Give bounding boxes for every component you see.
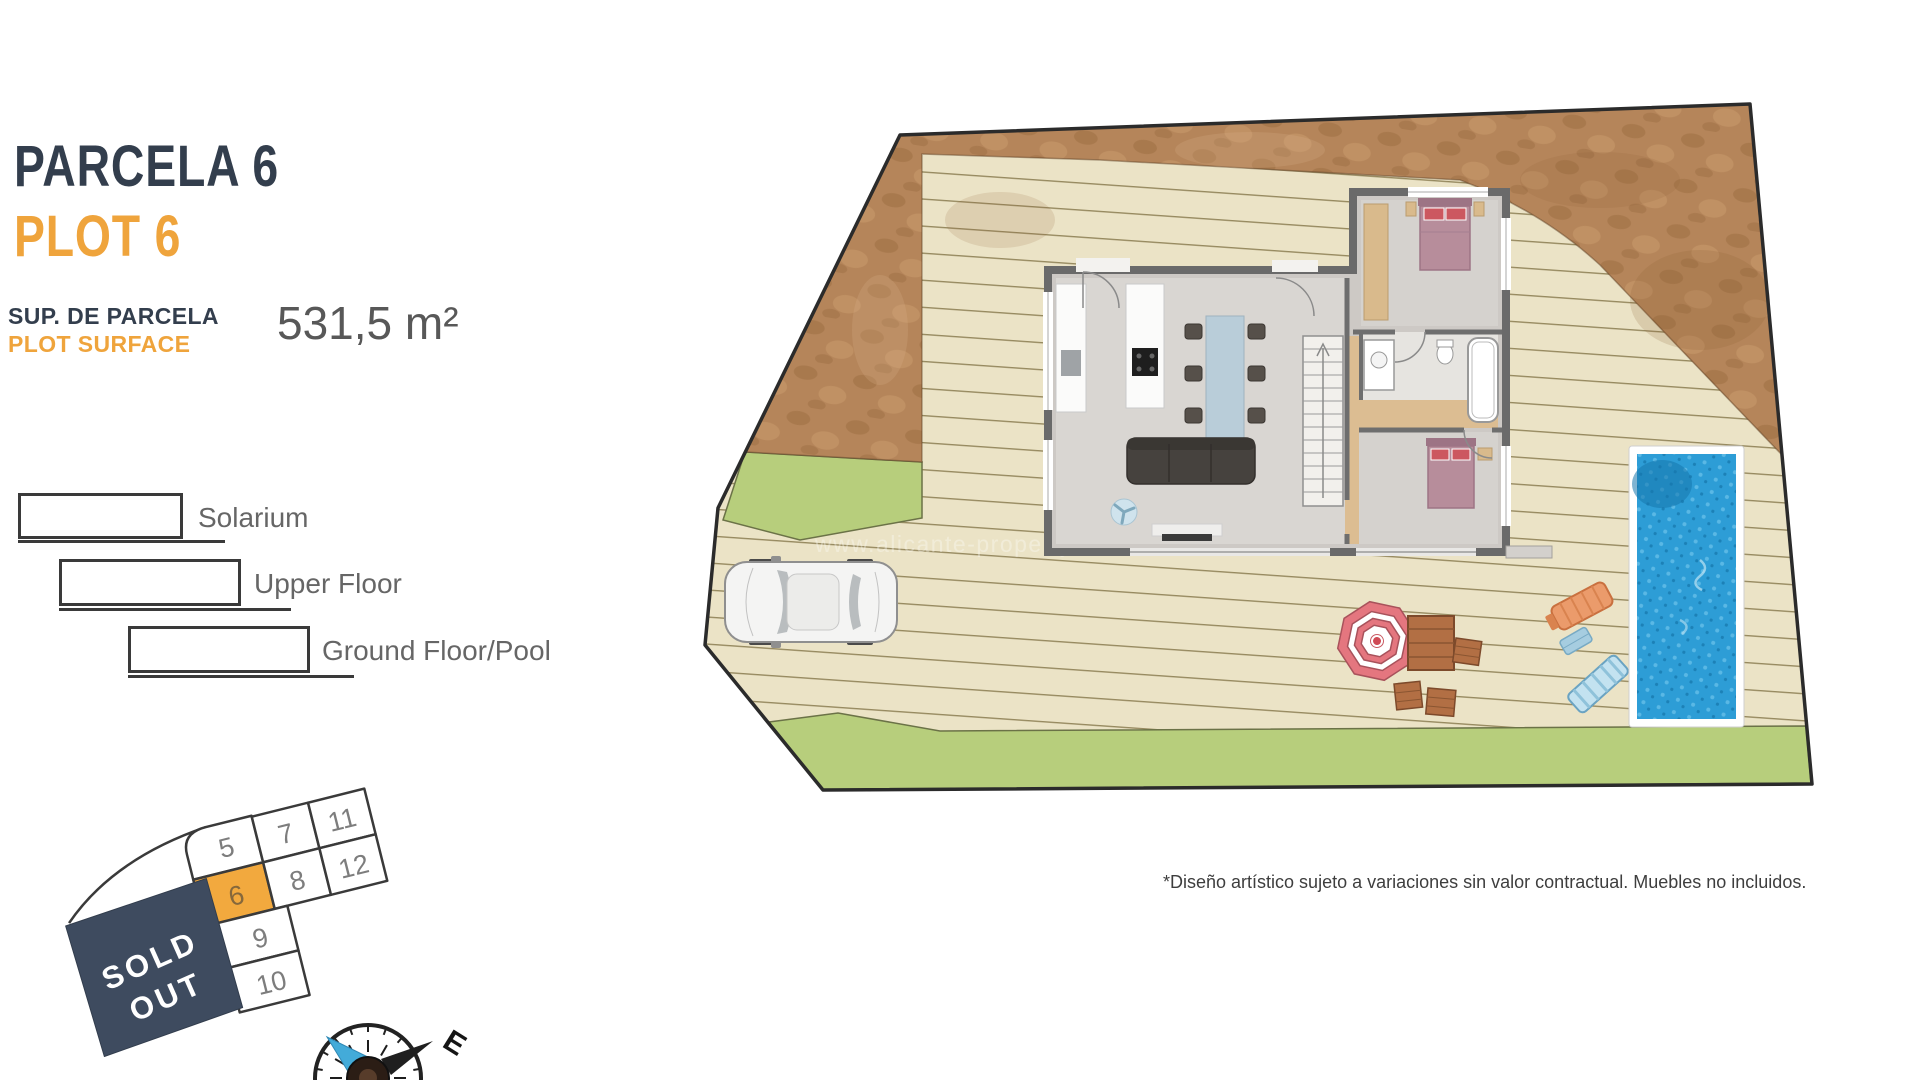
surface-value: 531,5 m² xyxy=(277,296,459,350)
dining-table xyxy=(1206,316,1244,438)
surface-label-es: SUP. DE PARCELA xyxy=(8,303,219,330)
siteplan-page: www.alicante-property.no xyxy=(0,0,1920,1080)
siteplan-drawing: www.alicante-property.no xyxy=(0,0,1920,1080)
legend-slab-line-2 xyxy=(59,608,291,611)
compass: E xyxy=(315,1024,472,1080)
legend-label-upper-floor: Upper Floor xyxy=(254,568,402,600)
legend-slab-line-3 xyxy=(128,675,354,678)
staircase xyxy=(1303,336,1343,506)
kitchen-island xyxy=(1126,284,1164,408)
plot-minimap: SOLD OUT 5 7 11 6 8 12 9 10 xyxy=(51,788,412,1058)
legend-box-upper-floor xyxy=(59,559,241,606)
compass-east-label: E xyxy=(437,1024,471,1063)
sink xyxy=(1371,352,1387,368)
disclaimer-text: *Diseño artístico sujeto a variaciones s… xyxy=(1163,872,1806,893)
legend-label-solarium: Solarium xyxy=(198,502,308,534)
pool xyxy=(1629,446,1744,727)
wardrobe xyxy=(1364,204,1388,320)
legend-label-ground-floor: Ground Floor/Pool xyxy=(322,635,551,667)
ceiling-fan-icon xyxy=(1111,499,1137,525)
legend-box-ground-floor xyxy=(128,626,310,673)
kitchen-counter xyxy=(1056,284,1086,412)
cooktop xyxy=(1132,348,1158,376)
bedroom2-floor xyxy=(1353,432,1498,544)
kitchen-sink xyxy=(1061,350,1081,376)
car xyxy=(725,556,897,648)
page-title-es: PARCELA 6 xyxy=(14,138,279,196)
legend-box-solarium xyxy=(18,493,183,539)
legend-slab-line-1 xyxy=(18,540,225,543)
terrace-step xyxy=(1506,546,1552,558)
sofa xyxy=(1127,438,1255,484)
surface-label-en: PLOT SURFACE xyxy=(8,331,190,358)
tv xyxy=(1162,534,1212,541)
page-title-en: PLOT 6 xyxy=(14,208,181,266)
